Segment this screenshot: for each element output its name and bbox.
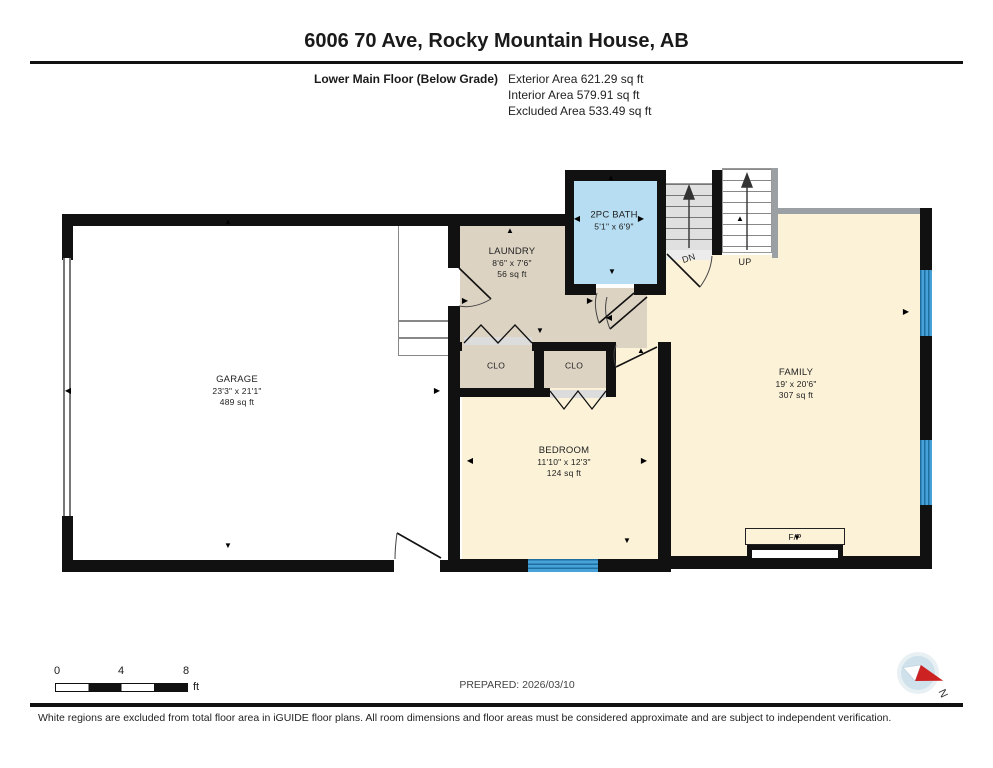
scale-tick-0: 0 (54, 665, 60, 677)
door-swings (395, 254, 712, 559)
laundry-door (459, 268, 491, 299)
measure-arrow: ▶ (638, 215, 644, 223)
stairs-up-label: UP (739, 257, 752, 269)
footer-divider (30, 703, 963, 707)
measure-arrow: ▶ (434, 387, 440, 395)
corridor-door (610, 297, 647, 329)
stairs-up-arrowhead (742, 174, 752, 187)
closet-left-label: CLO (487, 360, 505, 371)
bath-door-arc (595, 293, 599, 323)
garage-exterior-door (397, 533, 441, 558)
measure-arrow: ◀ (467, 457, 473, 465)
bifold-door-right-closet (550, 391, 606, 409)
measure-arrow: ▲ (607, 174, 615, 182)
measure-arrow: ▲ (224, 218, 232, 226)
scale-bar (55, 683, 188, 692)
family-label: FAMILY 19' x 20'6" 307 sq ft (775, 367, 816, 401)
bath-dims: 5'1" x 6'9" (590, 222, 637, 233)
laundry-dims: 8'6" x 7'6" (489, 258, 536, 269)
measure-arrow: ▲ (736, 215, 744, 223)
measure-arrow: ▶ (587, 297, 593, 305)
measure-arrow: ▼ (608, 268, 616, 276)
bedroom-door-arc (614, 345, 616, 367)
compass-icon: N (893, 648, 963, 703)
stairs-down-arrowhead (684, 186, 694, 199)
measure-arrow: ◀ (606, 314, 612, 322)
bath-label: 2PC BATH 5'1" x 6'9" (590, 209, 637, 232)
measure-arrow: ▶ (641, 457, 647, 465)
laundry-label: LAUNDRY 8'6" x 7'6" 56 sq ft (489, 246, 536, 280)
garage-exterior-door-arc (395, 533, 397, 559)
measure-arrow: ◀ (574, 215, 580, 223)
measure-arrow: ▼ (536, 327, 544, 335)
stairs-down-door-arc (700, 256, 712, 287)
compass-n-label: N (936, 687, 950, 699)
bedroom-dims: 11'10" x 12'3" (537, 457, 591, 468)
garage-name: GARAGE (212, 374, 261, 386)
bath-name: 2PC BATH (590, 209, 637, 221)
measure-arrow: ▶ (462, 297, 468, 305)
garage-label: GARAGE 23'3" x 21'1" 489 sq ft (212, 374, 261, 408)
scale-unit: ft (193, 681, 199, 693)
family-name: FAMILY (775, 367, 816, 379)
plan-linework (0, 0, 993, 768)
closet-right-label: CLO (565, 360, 583, 371)
bedroom-name: BEDROOM (537, 445, 591, 457)
laundry-name: LAUNDRY (489, 246, 536, 258)
floor-plan: F/P GARAGE 23'3" x 21'1" (0, 0, 993, 768)
measure-arrow: ◀ (65, 387, 71, 395)
bath-door (599, 293, 634, 323)
measure-arrow: ▲ (637, 347, 645, 355)
stair-arrows (684, 174, 752, 250)
measure-arrow: ▶ (903, 308, 909, 316)
family-area: 307 sq ft (775, 390, 816, 401)
footer-disclaimer: White regions are excluded from total fl… (38, 712, 968, 724)
scale-tick-4: 4 (118, 665, 124, 677)
measure-arrow: ▲ (506, 227, 514, 235)
garage-area: 489 sq ft (212, 397, 261, 408)
bedroom-area: 124 sq ft (537, 468, 591, 479)
family-dims: 19' x 20'6" (775, 379, 816, 390)
laundry-area: 56 sq ft (489, 269, 536, 280)
prepared-date: PREPARED: 2026/03/10 (367, 679, 667, 691)
measure-arrow: ▼ (793, 534, 801, 542)
bedroom-label: BEDROOM 11'10" x 12'3" 124 sq ft (537, 445, 591, 479)
bifold-door-left-closet (464, 325, 532, 343)
garage-dims: 23'3" x 21'1" (212, 386, 261, 397)
measure-arrow: ▼ (224, 542, 232, 550)
scale-tick-8: 8 (183, 665, 189, 677)
measure-arrow: ▼ (623, 537, 631, 545)
